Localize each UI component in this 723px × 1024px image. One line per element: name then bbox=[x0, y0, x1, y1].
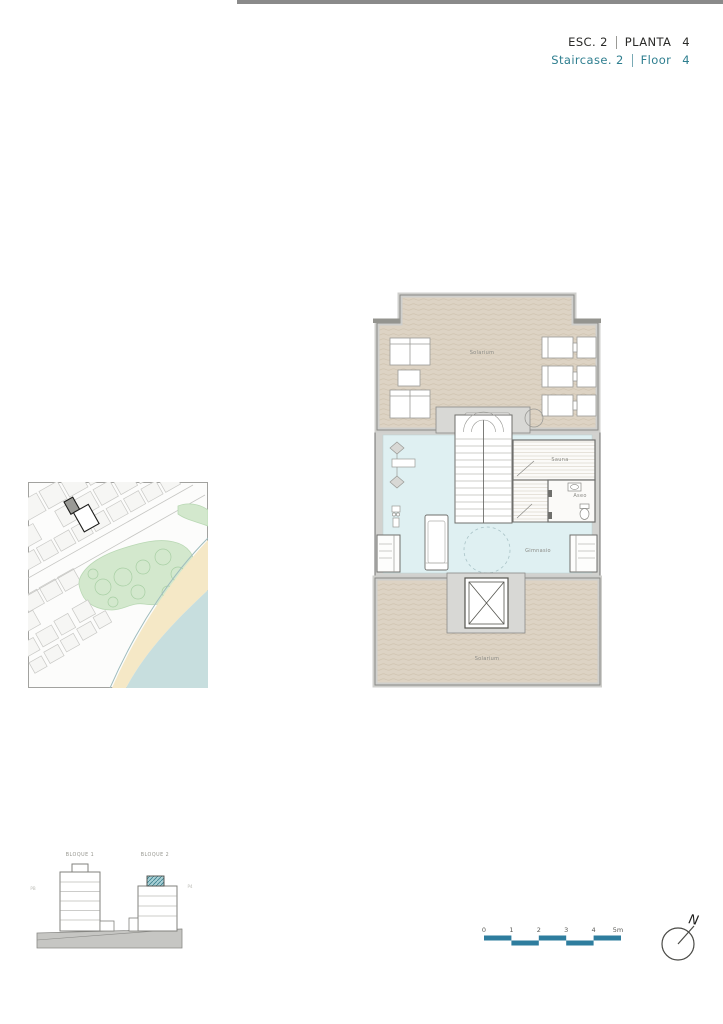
planta-number: 4 bbox=[682, 35, 690, 49]
title-row-spanish: ESC. 2 PLANTA 4 bbox=[551, 35, 690, 49]
elevator bbox=[447, 573, 525, 633]
closet-left bbox=[377, 535, 400, 572]
title-row-english: Staircase. 2 Floor 4 bbox=[551, 53, 690, 67]
title-divider-en bbox=[632, 54, 633, 67]
staircase-label: Staircase. 2 bbox=[551, 53, 623, 67]
bloque2-label: BLOQUE 2 bbox=[141, 852, 169, 858]
scale-tick-2: 2 bbox=[537, 926, 541, 934]
scale-bar-segments bbox=[484, 936, 621, 946]
toilet bbox=[580, 504, 589, 520]
scale-tick-4: 4 bbox=[592, 926, 596, 934]
wall-stub-left bbox=[373, 319, 400, 324]
bloque-2 bbox=[129, 876, 177, 931]
esc-label: ESC. 2 bbox=[568, 35, 608, 49]
north-compass: N bbox=[652, 906, 712, 966]
scale-tick-0: 0 bbox=[482, 926, 486, 934]
sauna-room: Sauna bbox=[513, 440, 595, 480]
floor4-highlight bbox=[147, 876, 164, 886]
closet-right bbox=[570, 535, 597, 572]
bench bbox=[392, 459, 415, 467]
scale-tick-3: 3 bbox=[564, 926, 568, 934]
sun-loungers-right bbox=[542, 337, 596, 416]
bloque1-label: BLOQUE 1 bbox=[66, 852, 94, 858]
scale-tick-labels: 0 1 2 3 4 5m bbox=[482, 926, 623, 934]
floor-number: 4 bbox=[682, 53, 690, 67]
staircase bbox=[455, 412, 512, 523]
title-divider bbox=[616, 36, 617, 49]
level-label-right: P4 bbox=[188, 884, 193, 889]
aseo-room: Aseo bbox=[548, 480, 595, 522]
title-block: ESC. 2 PLANTA 4 Staircase. 2 Floor 4 bbox=[551, 35, 690, 67]
page: ESC. 2 PLANTA 4 Staircase. 2 Floor 4 bbox=[0, 0, 723, 1024]
room-label-gimnasio: Gimnasio bbox=[525, 548, 551, 554]
north-label: N bbox=[687, 912, 700, 929]
building-elevation: BLOQUE 1 BLOQUE 2 PB P4 bbox=[25, 845, 205, 957]
site-map bbox=[28, 482, 208, 688]
scale-bar: 0 1 2 3 4 5m bbox=[478, 922, 628, 950]
room-label-solarium-bottom: Solarium bbox=[475, 656, 500, 662]
scale-tick-1: 1 bbox=[509, 926, 513, 934]
planta-label: PLANTA bbox=[625, 35, 671, 49]
bloque-1 bbox=[60, 864, 114, 931]
scale-end-label: 5m bbox=[613, 926, 623, 934]
wall-stub-right bbox=[574, 319, 601, 324]
sauna-anteroom bbox=[513, 480, 548, 522]
room-label-solarium-top: Solarium bbox=[470, 350, 495, 356]
room-label-sauna: Sauna bbox=[551, 457, 568, 463]
treadmill bbox=[425, 515, 448, 570]
room-label-aseo: Aseo bbox=[573, 493, 586, 499]
level-label-left: PB bbox=[30, 886, 35, 891]
floor-plan: Solarium Solarium Gimnasio bbox=[371, 292, 602, 688]
top-border-bar bbox=[237, 0, 723, 4]
floor-label: Floor bbox=[641, 53, 672, 67]
sink bbox=[568, 483, 581, 491]
ground bbox=[37, 929, 182, 948]
